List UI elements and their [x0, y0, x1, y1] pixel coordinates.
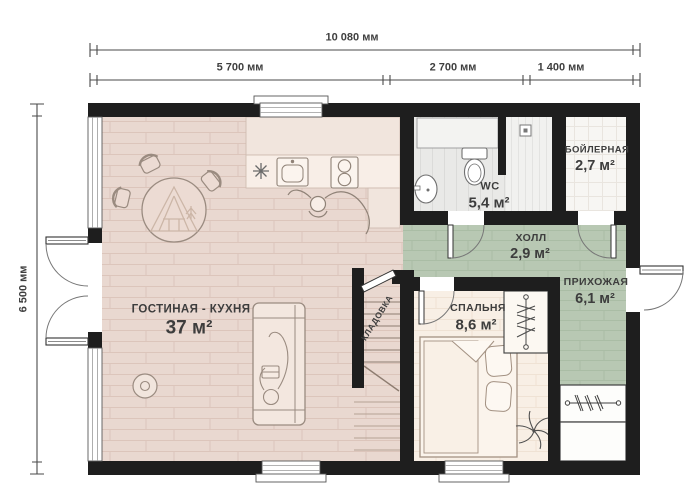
wc-vanity	[417, 118, 498, 148]
dimension-total-height: 6 500 мм	[19, 266, 30, 313]
door-swing	[46, 296, 88, 338]
stove-icon	[331, 157, 358, 188]
bedroom-wardrobe	[504, 291, 548, 353]
floor-plan: 10 080 мм 5 700 мм 2 700 мм 1 400 мм 6 5…	[0, 0, 697, 502]
room-area-entry: 6,1 м²	[575, 292, 615, 307]
window	[256, 461, 326, 482]
room-label-wc: WC	[480, 182, 499, 193]
window	[254, 96, 328, 117]
room-label-bedroom: СПАЛЬНЯ	[450, 303, 506, 314]
room-area-wc: 5,4 м²	[468, 196, 509, 211]
room-area-boiler: 2,7 м²	[575, 159, 615, 174]
floor-plan-drawing	[0, 0, 697, 502]
dimension-segment-3: 1 400 мм	[538, 63, 585, 74]
dimension-segment-2: 2 700 мм	[430, 63, 477, 74]
room-area-bedroom: 8,6 м²	[455, 318, 496, 333]
shower-drain-icon	[520, 125, 531, 136]
room-label-boiler: БОЙЛЕРНАЯ	[565, 145, 630, 155]
window	[88, 348, 102, 461]
entrance-door	[640, 266, 683, 310]
french-doors	[46, 237, 88, 345]
room-label-hall: ХОЛЛ	[516, 233, 547, 244]
room-label-living-kitchen: ГОСТИНАЯ - КУХНЯ	[132, 304, 251, 316]
entry-closet	[560, 385, 626, 461]
room-area-living-kitchen: 37 м²	[166, 319, 213, 338]
pillow-icon	[485, 381, 512, 412]
bed	[420, 337, 517, 457]
kitchen-sink-icon	[277, 158, 308, 186]
room-label-entry: ПРИХОЖАЯ	[564, 277, 629, 288]
dimension-segment-1: 5 700 мм	[217, 63, 264, 74]
floor-pouf-icon	[133, 374, 157, 398]
sofa	[253, 303, 305, 425]
window	[439, 461, 509, 482]
door-swing	[644, 271, 683, 310]
toilet-icon	[462, 148, 487, 185]
door-swing	[46, 244, 88, 286]
room-area-hall: 2,9 м²	[510, 247, 550, 262]
dimension-total-width: 10 080 мм	[326, 33, 379, 44]
window	[88, 117, 102, 228]
